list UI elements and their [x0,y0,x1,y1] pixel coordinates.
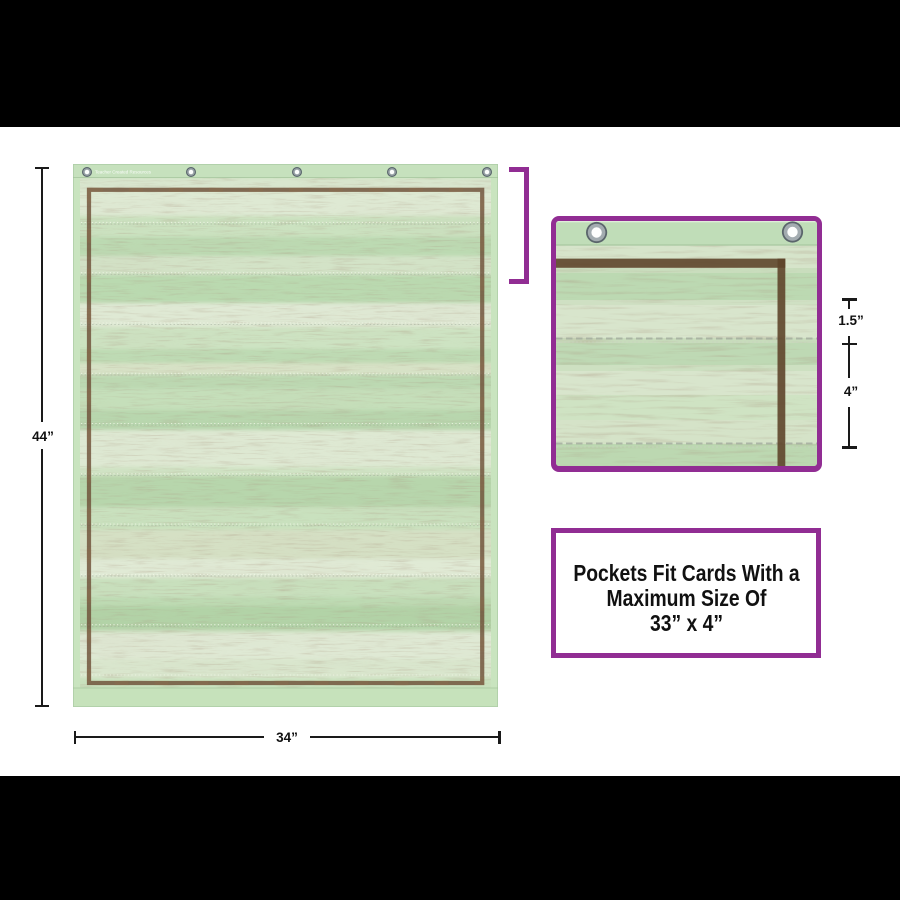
svg-text:Teacher Created Resources: Teacher Created Resources [95,170,152,175]
